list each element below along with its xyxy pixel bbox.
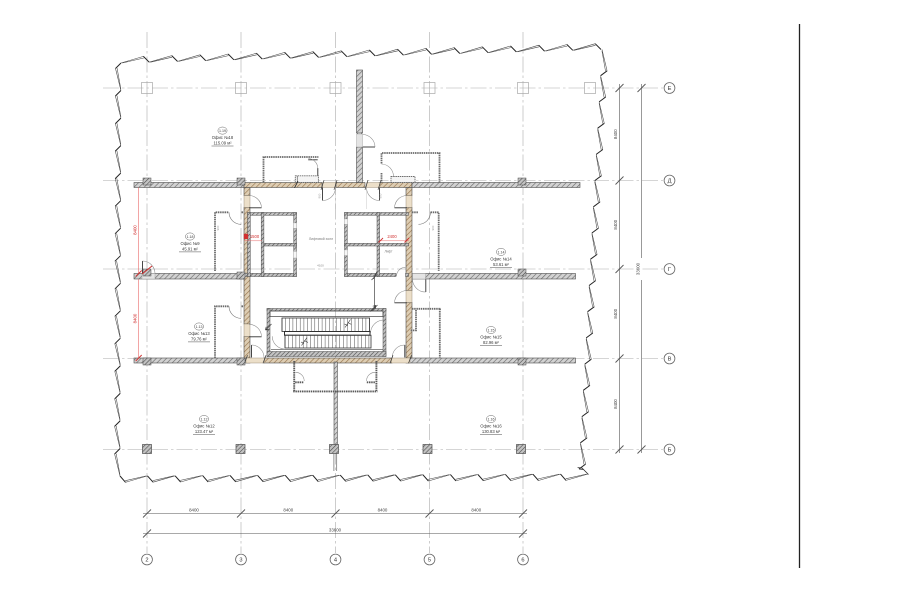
svg-text:8400: 8400 bbox=[613, 399, 618, 409]
svg-text:900: 900 bbox=[216, 225, 220, 230]
svg-text:1.16: 1.16 bbox=[488, 418, 495, 422]
svg-text:33600: 33600 bbox=[636, 262, 641, 275]
svg-text:45.91 м²: 45.91 м² bbox=[182, 247, 199, 252]
svg-text:115.09 м²: 115.09 м² bbox=[214, 141, 233, 146]
svg-text:Офис №18: Офис №18 bbox=[212, 135, 234, 140]
svg-text:8400: 8400 bbox=[613, 219, 618, 229]
svg-text:8400: 8400 bbox=[378, 508, 388, 513]
svg-text:1.15: 1.15 bbox=[488, 329, 495, 333]
svg-text:8400: 8400 bbox=[613, 129, 618, 139]
svg-text:Лифт: Лифт bbox=[385, 249, 393, 253]
svg-text:Офис №14: Офис №14 bbox=[490, 257, 512, 262]
svg-text:5: 5 bbox=[428, 558, 431, 564]
svg-text:8400: 8400 bbox=[133, 225, 138, 235]
svg-text:Офис №12: Офис №12 bbox=[193, 424, 215, 429]
svg-text:2: 2 bbox=[145, 558, 148, 564]
svg-text:123.47 м²: 123.47 м² bbox=[195, 429, 214, 434]
svg-text:Д: Д bbox=[668, 179, 672, 185]
svg-text:6: 6 bbox=[521, 558, 524, 564]
svg-text:53.61 м²: 53.61 м² bbox=[493, 262, 510, 267]
svg-text:900: 900 bbox=[318, 193, 322, 198]
svg-text:33600: 33600 bbox=[329, 528, 342, 533]
svg-text:82.96 м²: 82.96 м² bbox=[483, 340, 500, 345]
svg-text:Лифтовой холл: Лифтовой холл bbox=[309, 237, 333, 241]
svg-text:1.18: 1.18 bbox=[187, 235, 194, 239]
svg-text:1.19: 1.19 bbox=[219, 129, 226, 133]
svg-text:1500: 1500 bbox=[250, 234, 260, 239]
svg-text:79.76 м²: 79.76 м² bbox=[191, 337, 208, 342]
svg-text:Б: Б bbox=[668, 448, 672, 454]
svg-text:130.83 м²: 130.83 м² bbox=[482, 429, 501, 434]
svg-text:1.12: 1.12 bbox=[201, 418, 208, 422]
svg-text:8400: 8400 bbox=[283, 508, 293, 513]
svg-text:Офис №16: Офис №16 bbox=[480, 424, 502, 429]
svg-text:2400: 2400 bbox=[387, 234, 397, 239]
svg-text:3: 3 bbox=[239, 558, 242, 564]
svg-text:Г: Г bbox=[668, 267, 671, 273]
svg-text:8400: 8400 bbox=[471, 508, 481, 513]
svg-text:В: В bbox=[668, 357, 672, 363]
svg-text:900: 900 bbox=[431, 225, 435, 230]
svg-text:8400: 8400 bbox=[613, 308, 618, 318]
svg-text:1.13: 1.13 bbox=[196, 325, 203, 329]
svg-text:8400: 8400 bbox=[133, 313, 138, 323]
svg-text:Офис №15: Офис №15 bbox=[480, 335, 502, 340]
svg-text:1.14: 1.14 bbox=[498, 250, 505, 254]
svg-text:Офис №13: Офис №13 bbox=[188, 331, 210, 336]
svg-text:4100: 4100 bbox=[317, 264, 324, 268]
svg-text:8400: 8400 bbox=[189, 508, 199, 513]
svg-text:Е: Е bbox=[668, 86, 672, 92]
svg-text:Офис №9: Офис №9 bbox=[180, 241, 200, 246]
svg-text:4: 4 bbox=[334, 558, 337, 564]
svg-text:900: 900 bbox=[379, 193, 383, 198]
